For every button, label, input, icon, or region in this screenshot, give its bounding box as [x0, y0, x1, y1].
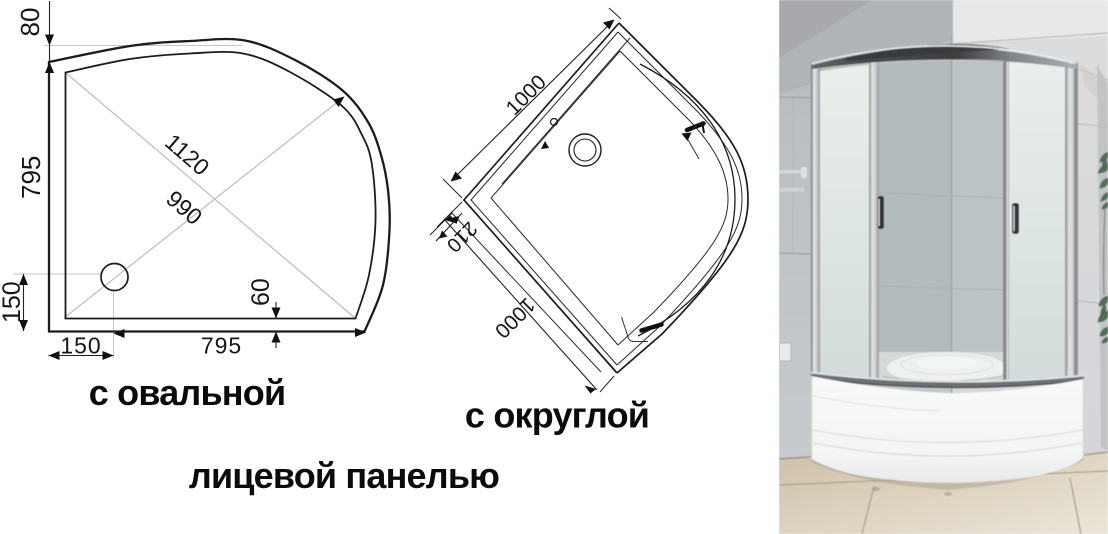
- svg-text:795: 795: [16, 156, 46, 199]
- svg-text:60: 60: [247, 278, 275, 306]
- svg-text:795: 795: [201, 333, 242, 359]
- svg-text:с овальной: с овальной: [89, 372, 286, 413]
- svg-text:80: 80: [15, 8, 45, 37]
- svg-text:150: 150: [0, 281, 26, 323]
- svg-text:с округлой: с округлой: [465, 395, 649, 436]
- svg-text:лицевой панелью: лицевой панелью: [189, 455, 499, 496]
- svg-text:150: 150: [60, 333, 101, 359]
